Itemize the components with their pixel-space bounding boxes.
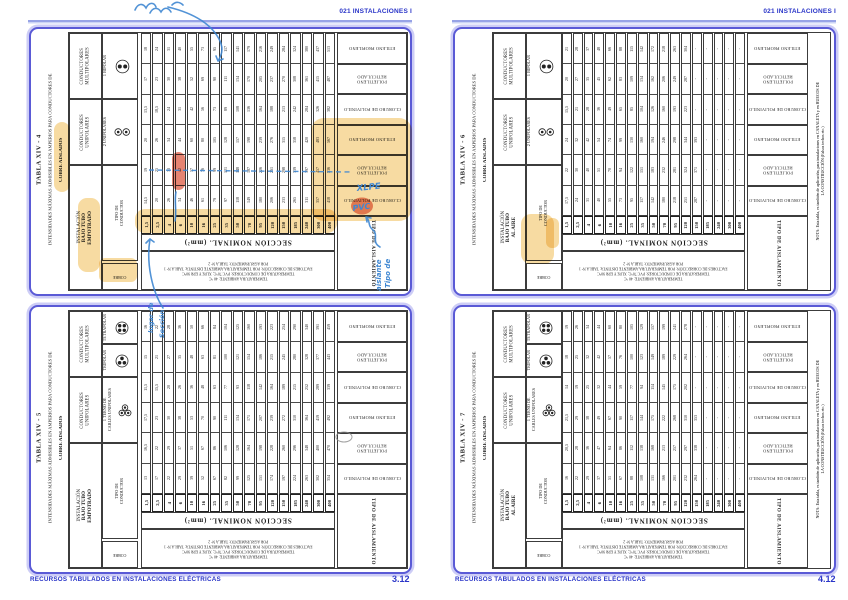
ampacity-cell: 215 xyxy=(291,373,299,403)
seccion-value: 400 xyxy=(327,222,332,229)
ampacity-cell: 160 xyxy=(639,125,647,155)
ampacity-cell: 138 xyxy=(639,433,647,463)
seccion-cell: 1,5 xyxy=(141,216,151,234)
ampacity-cell: 34 xyxy=(165,125,173,155)
ampacity-cell: - xyxy=(725,312,733,342)
seccion-cell: 70 xyxy=(244,216,254,234)
ampacity-cell: 284 xyxy=(280,34,288,64)
ampacity-column: 278264202310297232 xyxy=(681,311,691,494)
seccion-caption-cell: SECCIÓN NOMINAL. (mm²) xyxy=(141,512,335,529)
seccion-value: 95 xyxy=(258,501,263,506)
ampacity-cell: 42 xyxy=(585,125,593,155)
ampacity-value: 93 xyxy=(236,385,241,389)
ampacity-cell: 34 xyxy=(585,312,593,342)
ampacity-cell: 261 xyxy=(268,155,276,185)
ampacity-cell: 129 xyxy=(639,312,647,342)
ampacity-cell: 134 xyxy=(234,64,242,94)
ampacity-cell: 25 xyxy=(585,373,593,403)
ampacity-value: 183 xyxy=(651,167,656,173)
ampacity-cell: 80 xyxy=(199,125,207,155)
ampacity-cell: 42 xyxy=(595,342,603,372)
ampacity-value: 207 xyxy=(259,415,264,421)
tipo-aislamiento-label: TIPO DE AISLAMIENTO xyxy=(369,498,375,565)
ampacity-cell: 226 xyxy=(257,155,265,185)
group-multipolares-label: CONDUCTORESMULTIPOLARES xyxy=(80,325,91,363)
ampacity-cell: 278 xyxy=(682,312,690,342)
ampacity-value: 232 xyxy=(662,167,667,173)
ampacity-cell: 40 xyxy=(176,34,184,64)
ampacity-value: 21 xyxy=(155,355,160,359)
ampacity-cell: 168 xyxy=(650,433,658,463)
seccion-value: 120 xyxy=(270,500,275,507)
ampacity-cell: 189 xyxy=(280,373,288,403)
ampacity-value: 34 xyxy=(178,198,183,202)
ampacity-value: 121 xyxy=(236,354,241,360)
seccion-value: 10 xyxy=(608,223,613,228)
ampacity-cell: 287 xyxy=(682,64,690,94)
ampacity-value: 193 xyxy=(259,324,264,330)
seccion-value: 1,5 xyxy=(564,222,569,228)
ampacity-cell: 67 xyxy=(199,433,207,463)
ampacity-value: 19 xyxy=(575,385,580,389)
ampacity-value: 297 xyxy=(684,445,689,451)
ampacity-cell: 122 xyxy=(628,155,636,185)
ampacity-cell: 111 xyxy=(222,403,230,433)
ampacity-cell: - xyxy=(725,95,733,125)
ampacity-cell: 14,5 xyxy=(142,186,150,215)
ampacity-cell: 205 xyxy=(257,64,265,94)
ampacity-value: 239 xyxy=(259,137,264,143)
insulation-label: CLORURO DE POLIVINILO xyxy=(749,385,806,390)
ampacity-value: 134 xyxy=(236,415,241,421)
ampacity-column: 282720302922 xyxy=(164,311,174,494)
ampacity-value: - xyxy=(727,478,732,479)
ampacity-value: - xyxy=(727,78,732,79)
ampacity-column: 263249193298281218 xyxy=(670,33,680,216)
ampacity-cell: 76 xyxy=(617,342,625,372)
ampacity-cell: 17 xyxy=(153,464,161,493)
ampacity-value: 108 xyxy=(640,475,645,481)
group-unipolares-label: CONDUCTORESUNIPOLARES xyxy=(504,392,515,429)
ampacity-column: 304287223344324251 xyxy=(681,33,691,216)
ampacity-value: 35 xyxy=(586,77,591,81)
insulation-label-cell: POLIETILENORETICULADO xyxy=(747,64,808,95)
ampacity-cell: 99 xyxy=(211,155,219,185)
ampacity-cell: 263 xyxy=(303,464,311,493)
seccion-cell: 35 xyxy=(638,494,648,512)
ampacity-value: 172 xyxy=(651,46,656,52)
seccion-value: 25 xyxy=(212,223,217,228)
insulation-label-cell: POLIETILENORETICULADO xyxy=(337,64,407,95)
seccion-value: 240 xyxy=(716,500,721,507)
ampacity-cell: 94 xyxy=(617,155,625,185)
subtype-tetrapolar: TETRAPOLAR xyxy=(102,311,138,344)
seccion-cell: 185 xyxy=(703,494,713,512)
ampacity-value: - xyxy=(738,169,743,170)
ampacity-value: - xyxy=(716,417,721,418)
ampacity-value: 459 xyxy=(327,324,332,330)
ampacity-value: 100 xyxy=(224,354,229,360)
ampacity-cell: 237 xyxy=(268,64,276,94)
ampacity-value: 29 xyxy=(178,476,183,480)
ampacity-value: 276 xyxy=(270,137,275,143)
insulation-label: CLORURO DE POLIVINILO xyxy=(344,476,401,481)
ampacity-cell: - xyxy=(704,95,712,125)
ampacity-cell: 420 xyxy=(303,125,311,155)
ampacity-column: ------ xyxy=(714,311,724,494)
seccion-cell: 6 xyxy=(175,494,185,512)
ampacity-value: 64 xyxy=(608,446,613,450)
ampacity-value: 30 xyxy=(167,77,172,81)
ampacity-cell: 34 xyxy=(176,186,184,215)
ampacity-cell: - xyxy=(704,403,712,433)
ampacity-value: 29 xyxy=(586,476,591,480)
seccion-cell: 150 xyxy=(692,494,702,512)
installation-line: AL AIRE xyxy=(512,495,518,516)
ampacity-cell: 216 xyxy=(257,34,265,64)
two-unipolar-conductor-icon xyxy=(538,128,555,136)
ampacity-cell: 17 xyxy=(142,64,150,94)
ampacity-cell: - xyxy=(715,373,723,403)
ampacity-cell: - xyxy=(704,464,712,493)
insulation-label-cell: POLIETILENORETICULADO xyxy=(747,155,808,186)
ampacity-cell: 254 xyxy=(280,312,288,342)
group-unipolares-label: CONDUCTORESUNIPOLARES xyxy=(80,392,91,429)
insulation-label-cell: ETILENO PROPILENO xyxy=(337,33,407,64)
ampacity-value: 30 xyxy=(575,168,580,172)
ampacity-cell: 83 xyxy=(617,64,625,94)
insulation-label-cell: ETILENO PROPILENO xyxy=(747,403,808,434)
insulation-label-cell: ETILENO PROPILENO xyxy=(747,311,808,342)
group-multipolares-label: CONDUCTORESMULTIPOLARES xyxy=(504,325,515,363)
ampacity-value: 47 xyxy=(597,446,602,450)
ampacity-column: 363526383729 xyxy=(175,311,185,494)
ampacity-cell: 89 xyxy=(222,95,230,125)
seccion-cell: 400 xyxy=(735,216,745,234)
ampacity-value: - xyxy=(705,139,710,140)
insulation-label: ETILENO PROPILENO xyxy=(349,46,395,51)
ampacity-column: 459443339492470354 xyxy=(325,311,335,494)
ampacity-value: 17 xyxy=(144,77,149,81)
seccion-value: 50 xyxy=(651,501,656,506)
ampacity-cell: 186 xyxy=(257,342,265,372)
ampacity-cell: 194 xyxy=(650,125,658,155)
table-XIV-6: TABLA XIV - 6INTENSIDADES MÁXIMAS ADMISI… xyxy=(453,27,836,296)
ampacity-value: 13 xyxy=(144,476,149,480)
ampacity-value: 65 xyxy=(619,107,624,111)
ampacity-value: 14,5 xyxy=(144,197,149,204)
ampacity-value: 215 xyxy=(270,354,275,360)
ampacity-cell: 281 xyxy=(671,155,679,185)
insulation-label-cell: CLORURO DE POLIVINILO xyxy=(747,186,808,217)
table-subtitle-2: COBRE AISLADOS xyxy=(480,309,492,566)
ampacity-value: 30 xyxy=(167,416,172,420)
conditions-notes: TEMPERATURA AMBIENTE: 40 °CTEMPERATURA D… xyxy=(164,539,313,559)
ampacity-value: 206 xyxy=(270,197,275,203)
ampacity-value: 377 xyxy=(316,354,321,360)
ampacity-value: 74 xyxy=(608,138,613,142)
ampacity-value: 73 xyxy=(213,107,218,111)
ampacity-value: 38 xyxy=(586,416,591,420)
ampacity-column: 736956807661 xyxy=(198,33,208,216)
ampacity-cell: 145 xyxy=(660,373,668,403)
ampacity-cell: 21 xyxy=(153,342,161,372)
seccion-value: 70 xyxy=(247,223,252,228)
ampacity-value: 46 xyxy=(190,198,195,202)
ampacity-value: - xyxy=(694,78,699,79)
ampacity-cell: 142 xyxy=(650,186,658,215)
insulation-label: CLORURO DE POLIVINILO xyxy=(749,476,806,481)
insulation-label-cell: POLIETILENORETICULADO xyxy=(337,433,407,464)
ampacity-cell: 105 xyxy=(211,125,219,155)
ampacity-cell: 112 xyxy=(628,433,636,463)
ampacity-column: 12912394144138108 xyxy=(638,311,648,494)
ampacity-cell: 393 xyxy=(693,125,701,155)
group-multipolares: CONDUCTORESMULTIPOLARES xyxy=(493,33,526,99)
ampacity-value: 400 xyxy=(316,445,321,451)
ampacity-value: - xyxy=(694,356,699,357)
seccion-value: 16 xyxy=(201,223,206,228)
seccion-caption: SECCIÓN NOMINAL. (mm²) xyxy=(184,238,292,246)
ampacity-value: 492 xyxy=(327,415,332,421)
ampacity-cell: 62 xyxy=(606,64,614,94)
ampacity-value: 89 xyxy=(224,107,229,111)
conductor-material-label: COBRE xyxy=(113,274,126,279)
nota-side: NOTA: Esta tabla, es también de aplicaci… xyxy=(811,33,830,290)
seccion-value: 6 xyxy=(597,502,602,504)
ampacity-value: 228 xyxy=(270,445,275,451)
ampacity-column: 1041007711110682 xyxy=(221,311,231,494)
ampacity-value: - xyxy=(738,478,743,479)
ampacity-value: 27 xyxy=(167,355,172,359)
seccion-cell: 400 xyxy=(735,494,745,512)
ampacity-value: 38 xyxy=(178,416,183,420)
ampacity-value: 487 xyxy=(327,76,332,82)
seccion-cell: 35 xyxy=(221,494,231,512)
ampacity-value: 216 xyxy=(259,46,264,52)
ampacity-value: 134 xyxy=(640,76,645,82)
ampacity-cell: - xyxy=(704,186,712,215)
ampacity-value: - xyxy=(716,478,721,479)
ampacity-column: 555242605746 xyxy=(187,33,197,216)
seccion-value: 4 xyxy=(586,224,591,226)
ampacity-cell: 265 xyxy=(291,186,299,215)
ampacity-value: 126 xyxy=(651,106,656,112)
ampacity-cell: 134 xyxy=(234,403,242,433)
ampacity-value: - xyxy=(694,326,699,327)
nota-side-text: NOTA: Esta tabla, es también de aplicaci… xyxy=(815,82,825,240)
ampacity-cell: 128 xyxy=(234,433,242,463)
ampacity-value: 73 xyxy=(201,47,206,51)
ampacity-cell: 13,5 xyxy=(142,95,150,125)
group-unipolares: CONDUCTORESUNIPOLARES xyxy=(493,99,526,165)
ampacity-column: 141134108157148118 xyxy=(233,33,243,216)
ampacity-cell: - xyxy=(715,433,723,463)
ampacity-value: 36 xyxy=(586,446,591,450)
group-multipolares: CONDUCTORESMULTIPOLARES xyxy=(493,311,526,377)
ampacity-cell: 86 xyxy=(211,433,219,463)
ampacity-value: 391 xyxy=(316,324,321,330)
ampacity-cell: - xyxy=(725,464,733,493)
seccion-value: 400 xyxy=(737,500,742,507)
ampacity-value: 419 xyxy=(316,415,321,421)
ampacity-value: 252 xyxy=(305,384,310,390)
ampacity-cell: 268 xyxy=(671,403,679,433)
ampacity-value: 70 xyxy=(201,416,206,420)
seccion-value: 16 xyxy=(201,501,206,506)
ampacity-value: 20 xyxy=(155,198,160,202)
ampacity-cell: 23 xyxy=(153,403,161,433)
ampacity-value: 218 xyxy=(662,46,667,52)
ampacity-cell: 171 xyxy=(245,403,253,433)
ampacity-cell: - xyxy=(693,342,701,372)
ampacity-cell: 30 xyxy=(165,64,173,94)
ampacity-cell: 284 xyxy=(303,95,311,125)
ampacity-value: 73 xyxy=(619,198,624,202)
ampacity-cell: 22 xyxy=(563,155,571,185)
ampacity-value: 136 xyxy=(247,106,252,112)
ampacity-value: 80 xyxy=(201,138,206,142)
seccion-value: 240 xyxy=(304,500,309,507)
ampacity-cell: 44 xyxy=(176,125,184,155)
insulation-label-cell: POLIETILENORETICULADO xyxy=(337,155,407,186)
ampacity-cell: 175 xyxy=(671,373,679,403)
insulation-label-cell: CLORURO DE POLIVINILO xyxy=(747,464,808,495)
seccion-value: 150 xyxy=(281,500,286,507)
ampacity-cell: - xyxy=(704,125,712,155)
ampacity-cell: 28 xyxy=(585,95,593,125)
seccion-value: 240 xyxy=(304,222,309,229)
ampacity-value: 131 xyxy=(651,475,656,481)
ampacity-value: 31 xyxy=(178,107,183,111)
ampacity-cell: 27 xyxy=(165,342,173,372)
seccion-cell: 240 xyxy=(714,216,724,234)
ampacity-cell: 44 xyxy=(595,312,603,342)
ampacity-cell: 470 xyxy=(326,433,334,463)
ampacity-cell: 29 xyxy=(176,464,184,493)
ampacity-cell: 397 xyxy=(303,155,311,185)
ampacity-cell: 93 xyxy=(234,373,242,403)
bipolar-conductor-icon xyxy=(115,59,130,74)
ampacity-cell: 18,5 xyxy=(153,95,161,125)
ampacity-value: 21,5 xyxy=(565,414,570,421)
ampacity-cell: 118 xyxy=(234,186,242,215)
ampacity-value: 20,5 xyxy=(565,444,570,451)
ampacity-value: - xyxy=(727,200,732,201)
installation-line: EMPOTRADO xyxy=(88,489,94,523)
ampacity-value: 79 xyxy=(213,198,218,202)
ampacity-value: 55 xyxy=(608,198,613,202)
seccion-value: 6 xyxy=(178,502,183,504)
ampacity-value: 38 xyxy=(178,77,183,81)
seccion-value: 16 xyxy=(618,223,623,228)
ampacity-value: 281 xyxy=(673,167,678,173)
ampacity-value: 164 xyxy=(259,106,264,112)
table-subtitle-2: COBRE AISLADOS xyxy=(480,31,492,288)
ampacity-value: 40 xyxy=(178,47,183,51)
ampacity-cell: - xyxy=(704,64,712,94)
conditions-notes-cell: TEMPERATURA AMBIENTE: 40 °CTEMPERATURA D… xyxy=(562,529,745,568)
ampacity-cell: 39 xyxy=(188,464,196,493)
ampacity-value: 198 xyxy=(259,445,264,451)
ampacity-cell: 117 xyxy=(222,34,230,64)
ampacity-cell: 276 xyxy=(268,125,276,155)
ampacity-value: 340 xyxy=(305,324,310,330)
ampacity-cell: 69 xyxy=(199,64,207,94)
ampacity-value: - xyxy=(705,200,710,201)
ampacity-cell: - xyxy=(715,95,723,125)
ampacity-value: 42 xyxy=(178,168,183,172)
ampacity-value: 223 xyxy=(270,324,275,330)
ampacity-cell: 245 xyxy=(280,342,288,372)
seccion-cell: 400 xyxy=(325,216,335,234)
ampacity-value: 24 xyxy=(167,107,172,111)
ampacity-cell: 33 xyxy=(165,155,173,185)
ampacity-value: - xyxy=(716,356,721,357)
ampacity-cell: 24 xyxy=(563,125,571,155)
ampacity-value: 24 xyxy=(155,47,160,51)
ampacity-value: 45 xyxy=(597,77,602,81)
ampacity-cell: 264 xyxy=(693,464,701,493)
ampacity-cell: 246 xyxy=(660,125,668,155)
seccion-cell: 10 xyxy=(187,216,197,234)
seccion-cell: 70 xyxy=(659,216,669,234)
ampacity-cell: 310 xyxy=(291,403,299,433)
ampacity-column: 9590731059979 xyxy=(210,33,220,216)
ampacity-value: 36 xyxy=(597,107,602,111)
ampacity-column: 19181421,520,516 xyxy=(562,311,572,494)
ampacity-value: 265 xyxy=(293,197,298,203)
ampacity-value: 264 xyxy=(684,354,689,360)
ampacity-column: 513487382567536418 xyxy=(325,33,335,216)
terno-conductor-icon xyxy=(542,404,556,417)
ampacity-cell: 338 xyxy=(693,433,701,463)
terno-conductor-icon xyxy=(118,404,132,417)
ampacity-value: - xyxy=(727,417,732,418)
ampacity-cell: 310 xyxy=(682,403,690,433)
ampacity-cell: 298 xyxy=(671,125,679,155)
installation-cell: INSTALACIÓNBAJO TUBOEMPOTRADO xyxy=(69,443,102,568)
ampacity-cell: 76 xyxy=(199,155,207,185)
ampacity-column: 282721323024 xyxy=(573,33,583,216)
ampacity-cell: 270 xyxy=(280,64,288,94)
ampacity-cell: - xyxy=(704,155,712,185)
ampacity-value: 142 xyxy=(259,384,264,390)
ampacity-value: 54 xyxy=(597,138,602,142)
conductor-material-label: COBRE xyxy=(537,274,550,279)
ampacity-cell: 487 xyxy=(326,64,334,94)
ampacity-value: 76 xyxy=(201,168,206,172)
seccion-value: 35 xyxy=(640,501,645,506)
ampacity-column: 290280215310296224 xyxy=(290,311,300,494)
ampacity-value: - xyxy=(705,447,710,448)
ampacity-value: 145 xyxy=(662,384,667,390)
ampacity-cell: 15 xyxy=(142,342,150,372)
ampacity-cell: 15,5 xyxy=(153,373,161,403)
ampacity-value: 117 xyxy=(630,415,635,421)
conditions-notes-cell: TEMPERATURA AMBIENTE: 40 °CTEMPERATURA D… xyxy=(141,251,335,290)
ampacity-value: 15,5 xyxy=(565,106,570,113)
ampacity-cell: 45 xyxy=(595,64,603,94)
seccion-value: 35 xyxy=(224,223,229,228)
ampacity-value: 280 xyxy=(293,354,298,360)
insulation-label: ETILENO PROPILENO xyxy=(349,137,395,142)
ampacity-cell: 361 xyxy=(303,64,311,94)
ampacity-value: 567 xyxy=(327,137,332,143)
ampacity-value: 188 xyxy=(270,106,275,112)
ampacity-value: 109 xyxy=(630,76,635,82)
ampacity-cell: 67 xyxy=(211,464,219,493)
